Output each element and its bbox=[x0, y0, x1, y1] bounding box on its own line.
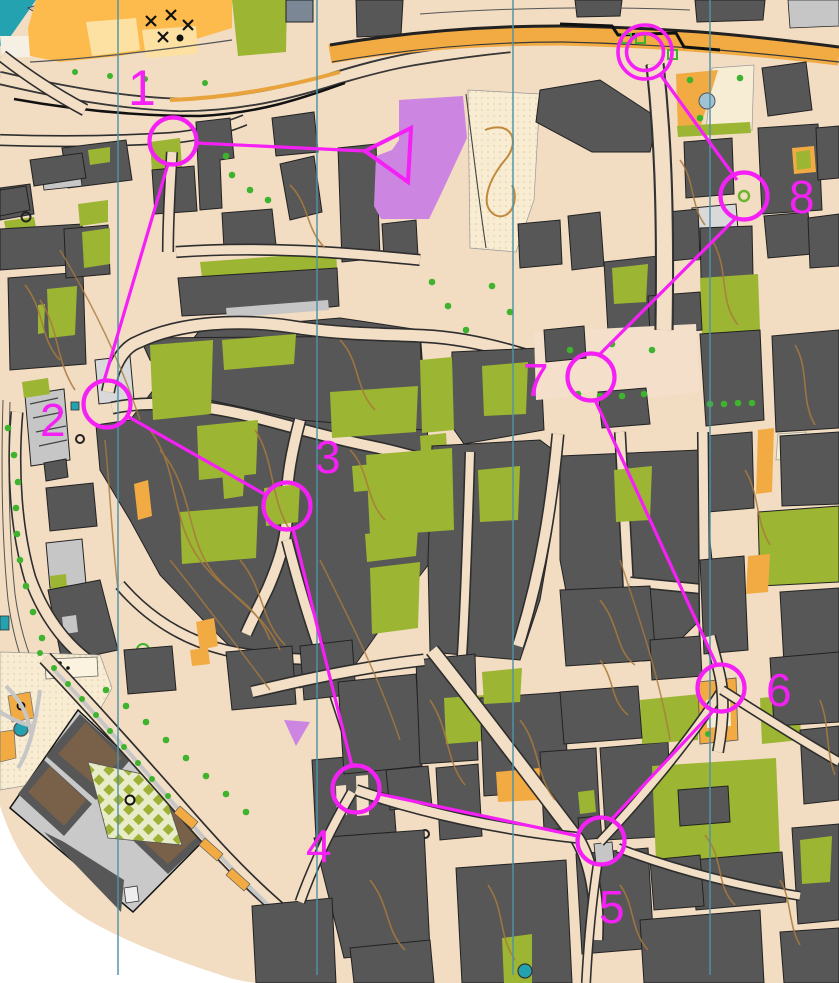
svg-text:8: 8 bbox=[789, 171, 815, 223]
svg-text:7: 7 bbox=[523, 354, 549, 406]
svg-text:1: 1 bbox=[128, 60, 156, 116]
svg-text:6: 6 bbox=[766, 664, 792, 716]
svg-text:3: 3 bbox=[315, 431, 341, 483]
svg-text:5: 5 bbox=[599, 881, 625, 933]
svg-text:2: 2 bbox=[40, 394, 66, 446]
svg-text:4: 4 bbox=[306, 820, 332, 872]
